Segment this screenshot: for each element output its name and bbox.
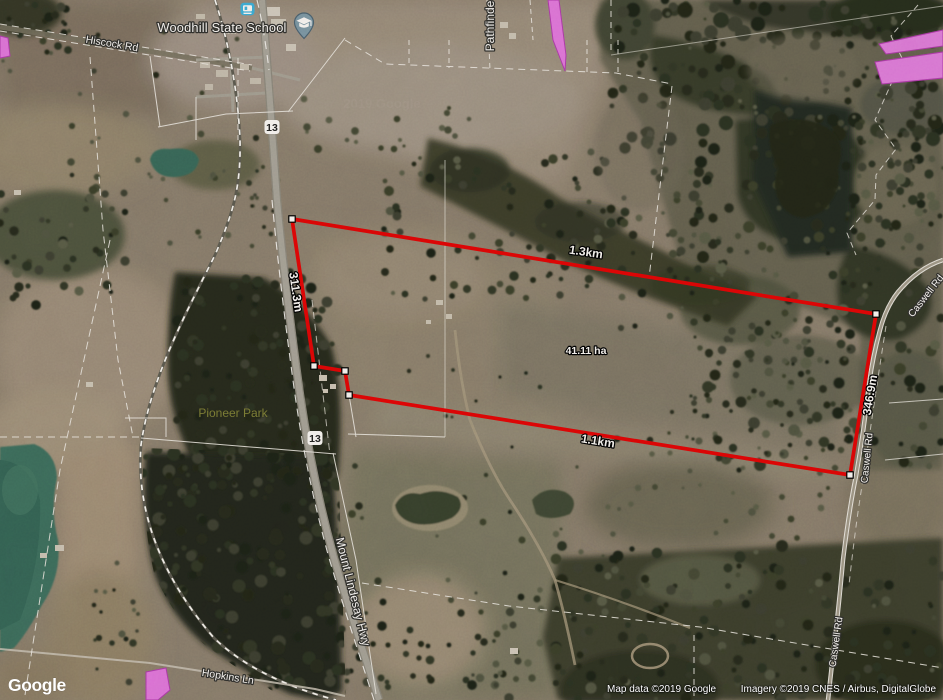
svg-text:Map data ©2019 Google: Map data ©2019 Google xyxy=(607,684,717,695)
svg-text:Imagery ©2019 CNES / Airbus, D: Imagery ©2019 CNES / Airbus, DigitalGlob… xyxy=(741,684,937,695)
svg-text:Google: Google xyxy=(8,675,67,695)
